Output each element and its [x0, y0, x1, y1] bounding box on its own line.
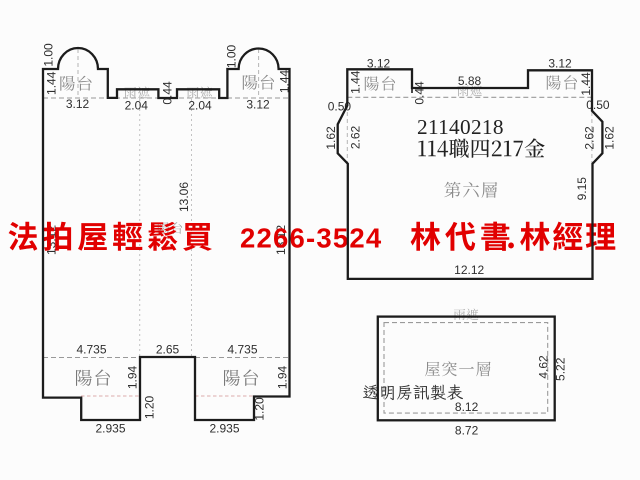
- svg-text:4.735: 4.735: [227, 343, 257, 357]
- svg-text:1.62: 1.62: [324, 126, 338, 150]
- svg-text:5.88: 5.88: [458, 74, 482, 88]
- svg-text:2266-3524: 2266-3524: [240, 222, 382, 253]
- svg-text:13.06: 13.06: [177, 182, 191, 212]
- svg-text:1.44: 1.44: [348, 70, 362, 94]
- svg-text:2.62: 2.62: [349, 125, 363, 149]
- svg-text:1.00: 1.00: [224, 44, 238, 68]
- svg-text:0.44: 0.44: [161, 81, 175, 105]
- svg-text:2.04: 2.04: [188, 99, 212, 113]
- svg-text:1.94: 1.94: [126, 365, 140, 389]
- svg-text:8.12: 8.12: [455, 400, 479, 414]
- svg-text:3.12: 3.12: [548, 56, 572, 70]
- svg-text:1.20: 1.20: [142, 395, 156, 419]
- svg-text:1.94: 1.94: [276, 365, 290, 389]
- svg-text:2.935: 2.935: [95, 421, 125, 435]
- svg-text:1.44: 1.44: [45, 71, 59, 95]
- svg-text:4.62: 4.62: [537, 355, 551, 379]
- svg-text:1.00: 1.00: [41, 43, 55, 67]
- svg-text:0.44: 0.44: [413, 81, 427, 105]
- svg-text:2.65: 2.65: [156, 343, 180, 357]
- svg-text:3.12: 3.12: [246, 97, 270, 111]
- svg-text:0.50: 0.50: [586, 98, 610, 112]
- svg-text:12.12: 12.12: [454, 263, 484, 277]
- svg-text:21140218: 21140218: [417, 115, 504, 139]
- svg-text:2.04: 2.04: [125, 99, 149, 113]
- svg-text:2.935: 2.935: [209, 421, 239, 435]
- svg-text:3.12: 3.12: [66, 97, 90, 111]
- svg-text:9.15: 9.15: [575, 177, 589, 201]
- svg-text:8.72: 8.72: [455, 423, 479, 437]
- svg-text:4.735: 4.735: [76, 343, 106, 357]
- svg-text:2.62: 2.62: [583, 126, 597, 150]
- svg-text:1.62: 1.62: [603, 126, 617, 150]
